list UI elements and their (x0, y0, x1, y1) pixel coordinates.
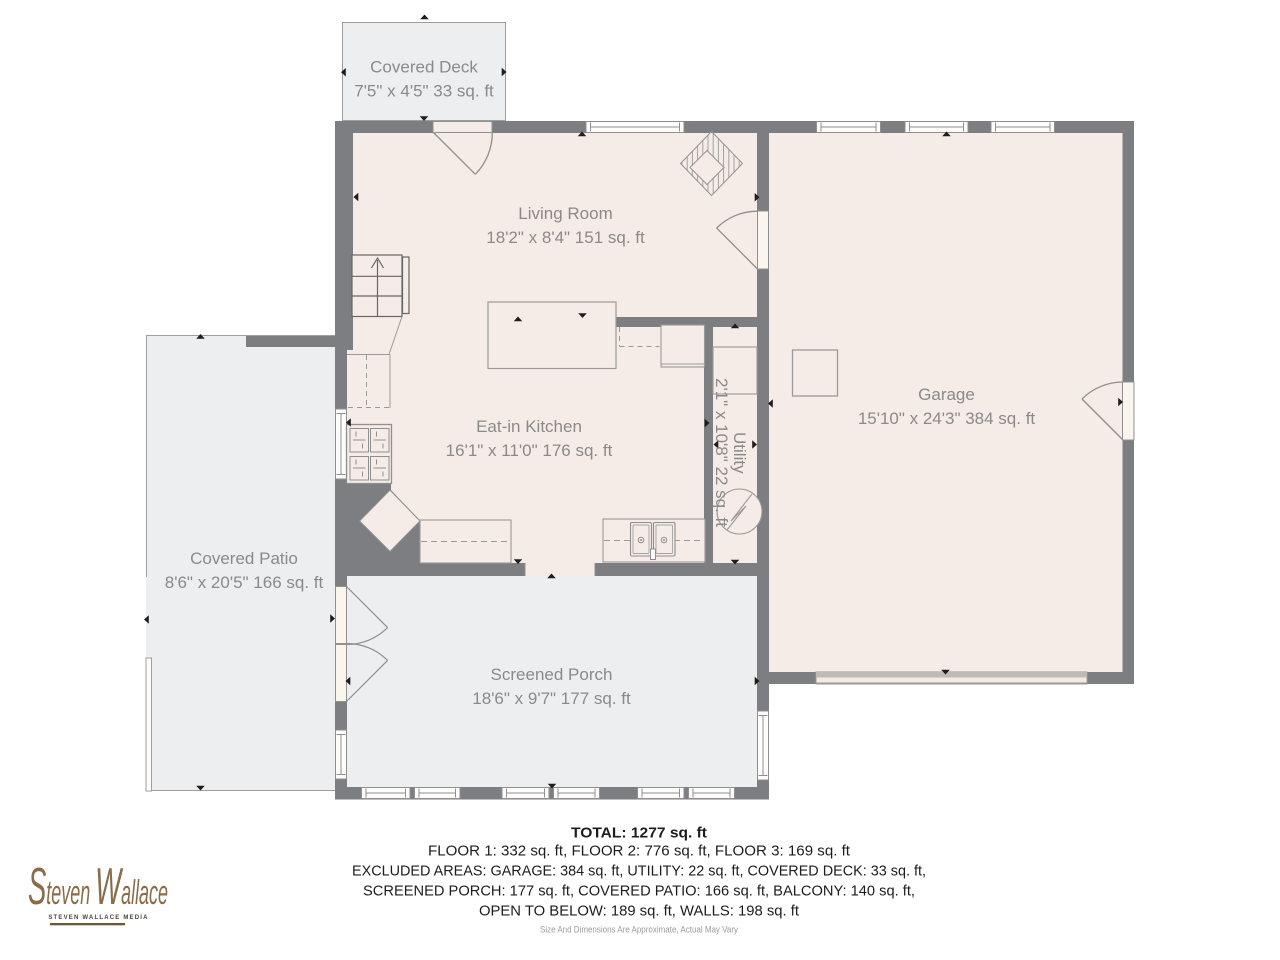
svg-text:15'10" x 24'3" 384 sq. ft: 15'10" x 24'3" 384 sq. ft (858, 409, 1036, 428)
svg-text:STEVEN WALLACE MEDIA: STEVEN WALLACE MEDIA (48, 915, 148, 921)
svg-text:Covered Deck: Covered Deck (370, 58, 478, 77)
svg-text:18'6" x 9'7" 177 sq. ft: 18'6" x 9'7" 177 sq. ft (472, 689, 631, 708)
svg-text:2'1" x 10'8" 22 sq. ft: 2'1" x 10'8" 22 sq. ft (712, 378, 731, 527)
svg-text:Covered Patio: Covered Patio (190, 549, 298, 568)
svg-text:Screened Porch: Screened Porch (491, 665, 613, 684)
svg-text:FLOOR 1: 332 sq. ft, FLOOR 2:: FLOOR 1: 332 sq. ft, FLOOR 2: 776 sq. ft… (428, 842, 851, 859)
svg-text:EXCLUDED AREAS: GARAGE: 384 sq: EXCLUDED AREAS: GARAGE: 384 sq. ft, UTIL… (352, 862, 926, 879)
svg-text:SCREENED PORCH: 177 sq. ft, CO: SCREENED PORCH: 177 sq. ft, COVERED PATI… (363, 882, 915, 899)
svg-text:TOTAL: 1277 sq. ft: TOTAL: 1277 sq. ft (571, 824, 707, 841)
svg-text:Eat-in Kitchen: Eat-in Kitchen (476, 417, 582, 436)
svg-text:OPEN TO BELOW: 189 sq. ft, WAL: OPEN TO BELOW: 189 sq. ft, WALLS: 198 sq… (479, 902, 800, 919)
svg-text:Utility: Utility (730, 432, 749, 474)
svg-text:Living Room: Living Room (518, 204, 613, 223)
svg-text:16'1" x 11'0" 176 sq. ft: 16'1" x 11'0" 176 sq. ft (446, 441, 613, 460)
svg-text:7'5" x 4'5" 33 sq. ft: 7'5" x 4'5" 33 sq. ft (354, 82, 494, 101)
svg-text:18'2" x 8'4" 151 sq. ft: 18'2" x 8'4" 151 sq. ft (486, 228, 645, 247)
svg-text:Steven Wallace: Steven Wallace (28, 858, 168, 916)
svg-text:Size And Dimensions Are Approx: Size And Dimensions Are Approximate, Act… (540, 925, 738, 935)
svg-text:Garage: Garage (918, 385, 975, 404)
svg-text:8'6" x 20'5" 166 sq. ft: 8'6" x 20'5" 166 sq. ft (165, 573, 324, 592)
